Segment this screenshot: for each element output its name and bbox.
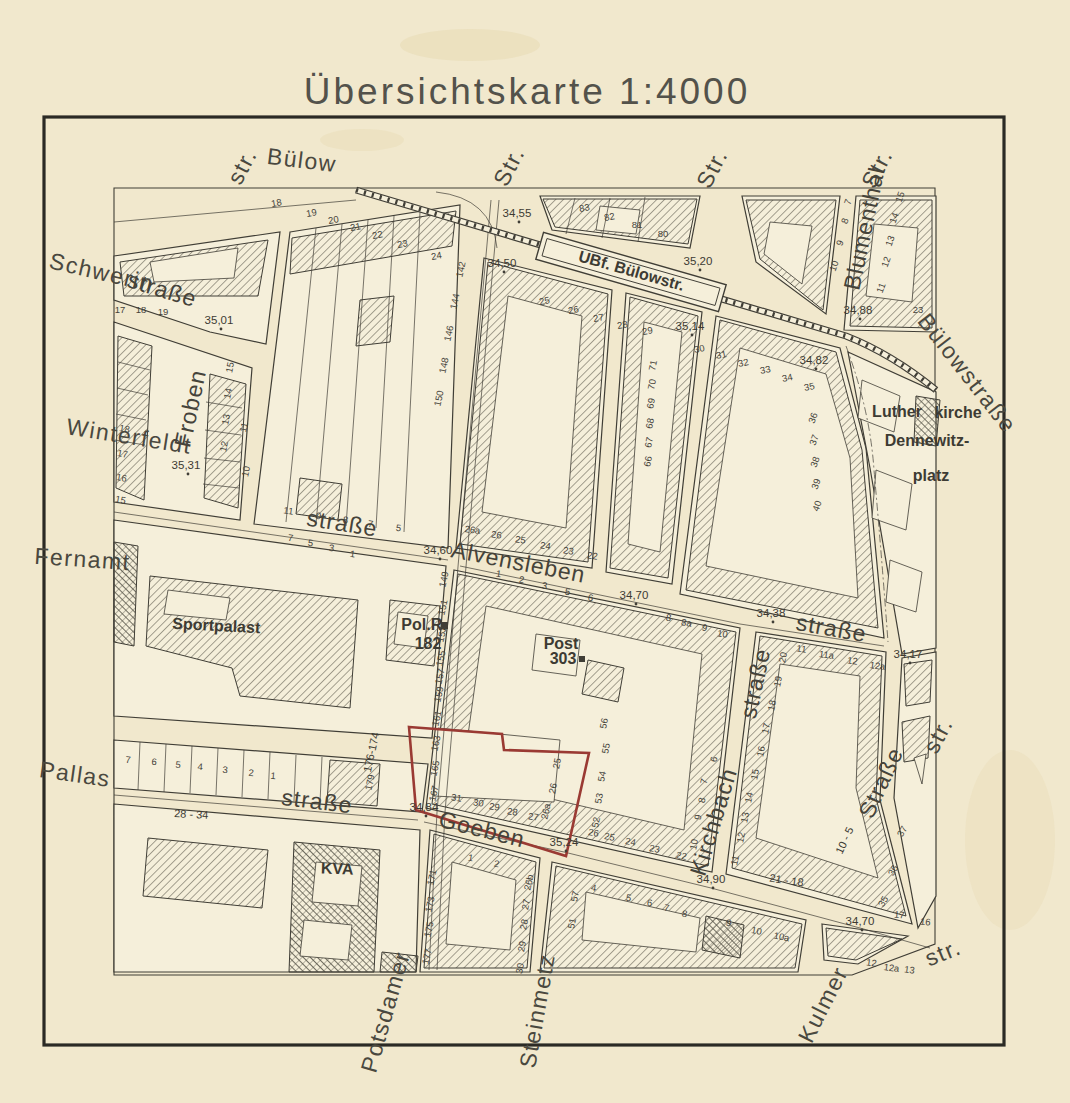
house-number-label: 19 [158,306,169,317]
house-number-label: 28 [616,318,628,331]
house-number-label: 10 [687,838,700,851]
house-number-label: 12a [883,961,901,974]
house-number-label: 22 [371,228,383,241]
house-number-label: 25 [550,757,563,770]
house-number-label: 26a [464,523,482,536]
elevation-dot [859,318,862,321]
house-number-label: 12 [217,440,230,453]
house-number-label: 26 [546,782,559,795]
house-number-label: 51 [565,917,578,930]
house-number-label: 25 [538,294,550,307]
elevation-label: 34,55 [503,207,532,219]
house-number-label: 23 [648,842,660,855]
house-number-label: 22 [586,549,598,561]
elevation-label: 34,17 [894,648,923,660]
elevation-dot [439,558,442,561]
house-number-label: 21 [349,220,361,233]
paper-stain [320,129,404,151]
elevation-label: 34,50 [488,257,517,269]
elevation-label: 34,88 [844,304,873,316]
house-number-label: 27 [519,898,532,911]
elevation-label: 34,70 [620,589,649,601]
elevation-dot [861,929,864,932]
elevation-label: 35,20 [684,255,713,267]
house-number-label: 24 [430,249,442,262]
house-number-label: 12 [865,956,877,968]
elevation-label: 34,60 [424,544,453,556]
house-number-label: 23 [562,544,574,556]
house-number-label: 28 [506,805,518,817]
house-number-label: 31 [450,791,462,803]
elevation-dot [220,328,223,331]
house-number-label: 27 [527,810,539,822]
elevation-label: 35,14 [676,320,705,332]
overview-map: Übersichtskarte 1:4000 [0,0,1070,1103]
elevation-dot [503,271,506,274]
house-number-label: 17 [759,722,772,735]
house-number-label: 26 [587,826,599,839]
house-number-label: 20 [776,651,789,664]
house-number-label: 23 [913,304,924,315]
house-number-label: 4 [197,761,203,772]
house-number-label: 22 [675,849,687,862]
house-number-label: 13 [903,963,915,975]
elevation-label: 34,82 [800,354,829,366]
house-number-label: 27 [592,311,604,324]
house-number-label: 31 [715,348,728,361]
place-label: kirche [934,404,981,421]
house-number-label: 33 [759,363,772,376]
house-number-label: 26 [490,528,502,540]
house-number-label: 3 [222,764,228,775]
house-number-label: 32 [737,356,750,369]
place-label: Dennewitz- [885,432,969,449]
house-number-label: 56 [597,717,610,730]
place-label: Luther [872,403,922,420]
place-label: platz [913,467,949,484]
house-number-label: 57 [568,890,581,903]
house-number-label: 67 [642,436,655,449]
house-number-label: 81 [632,219,643,230]
house-number-label: 16 [754,745,767,758]
scanned-map-page: Übersichtskarte 1:4000 [0,0,1070,1103]
house-number-label: 29 [488,800,500,812]
elevation-dot [815,368,818,371]
place-label: KVA [321,859,355,877]
house-number-label: 10 [716,627,728,640]
house-number-label: 14 [221,387,234,400]
house-number-label: 19 [771,675,784,688]
elevation-label: 35,24 [550,836,579,848]
place-label: 303 [550,650,577,667]
house-number-label: 23 [396,237,408,250]
house-number-label: 15 [748,768,761,781]
house-number-label: 16 [920,915,932,927]
house-number-label: 82 [603,210,615,223]
house-number-label: 10 [239,465,252,478]
house-number-label: 26 [567,303,579,316]
map-title: Übersichtskarte 1:4000 [304,71,750,112]
house-number-label: 7 [125,754,131,765]
house-number-label: 11a [818,648,835,661]
house-number-label: 25 [514,533,526,545]
house-number-label: 18 [765,699,778,712]
house-number-label: 5 [175,759,181,770]
house-number-label: 18 [118,422,130,435]
house-number-label: 20 [327,213,339,226]
house-number-label: 29 [641,324,653,337]
house-number-label: 54 [595,770,608,783]
house-number-label: 15 [114,493,126,506]
house-number-label: 29 [515,940,528,953]
house-number-label: 12a [869,659,887,672]
elevation-dot [635,603,638,606]
house-number-label: 10 [750,924,762,937]
house-number-label: 69 [644,397,657,410]
house-number-label: 25 [603,830,615,843]
house-number-label: 53 [592,792,605,805]
city-block [456,258,612,568]
elevation-dot [565,850,568,853]
house-number-label: 16 [115,471,127,484]
house-number-label: 30 [693,342,706,355]
elevation-label: 34,90 [697,873,726,885]
house-number-label: 12 [846,654,858,666]
city-block [114,804,420,972]
house-number-label: 30 [513,962,526,975]
elevation-label: 34,70 [846,915,875,927]
house-number-label: 12 [734,831,747,844]
house-number-label: 24 [539,539,551,551]
elevation-dot [425,815,428,818]
house-number-label: 11 [796,642,807,654]
house-number-label: 13 [219,413,232,426]
house-number-label: 55 [599,742,612,755]
house-number-label: 83 [578,201,590,214]
house-number-label: 13 [738,811,751,824]
paper-stain [965,750,1055,930]
elevation-label: 35,01 [205,314,234,326]
elevation-dot [909,662,912,665]
house-number-label: 35 [803,380,816,393]
house-number-label: 18 [136,304,147,315]
house-number-label: 70 [645,378,658,391]
house-number-label: 28 [517,918,530,931]
house-number-label: 2 [248,767,254,778]
house-number-label: 1 [270,770,276,781]
house-number-label: 15 [223,361,236,374]
house-number-label: 19 [305,206,317,219]
elevation-dot [699,269,702,272]
post-office-symbol [579,656,585,662]
house-number-label: 17 [116,447,128,460]
house-number-range-label: 28 - 34 [174,807,209,821]
house-number-label: 30 [472,796,484,808]
house-number-label: 17 [115,304,126,315]
house-number-label: 66 [641,455,654,468]
house-number-label: 71 [646,359,659,372]
house-number-label: 24 [624,835,636,848]
elevation-dot [772,621,775,624]
house-number-label: 17 [894,908,906,920]
elevation-label: 34,84 [410,801,439,813]
house-number-label: 6 [151,756,157,767]
elevation-dot [691,334,694,337]
elevation-dot [187,473,190,476]
house-number-label: 34 [781,371,794,384]
elevation-label: 34,38 [757,607,786,619]
elevation-label: 35,31 [172,459,201,471]
elevation-dot [712,887,715,890]
paper-stain [400,29,540,61]
house-number-label: 80 [658,228,669,239]
house-number-label: 11 [283,504,294,516]
house-number-label: 18 [270,196,282,209]
house-number-label: 68 [643,417,656,430]
elevation-dot [518,221,521,224]
house-number-label: 14 [742,791,755,804]
